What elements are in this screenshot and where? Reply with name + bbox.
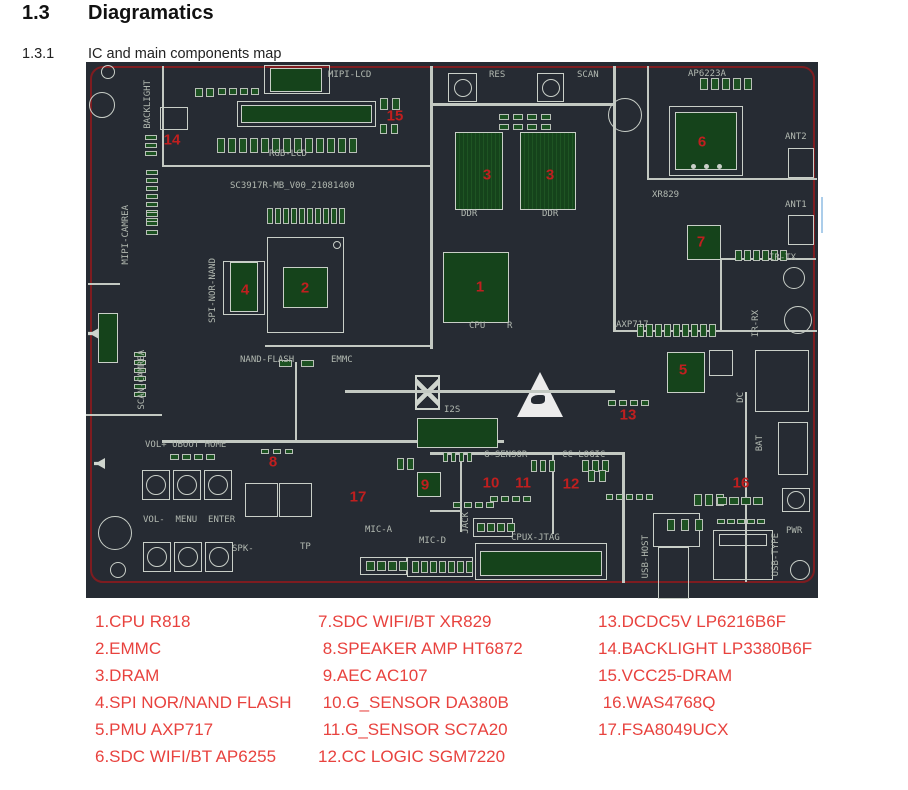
section-line: [622, 452, 625, 583]
tact-button: [204, 470, 232, 500]
silkscreen-label: RES: [489, 70, 505, 80]
solder-pad: [762, 250, 769, 261]
tact-button-cap: [177, 475, 197, 495]
section-line: [430, 103, 616, 106]
tact-button: [173, 470, 201, 500]
solder-pad: [448, 561, 455, 573]
solder-pad: [291, 208, 297, 224]
legend-column-3: 13.DCDC5V LP6216B6F14.BACKLIGHT LP3380B6…: [598, 608, 812, 743]
solder-pad: [451, 452, 456, 462]
esd-warning-hand: [531, 395, 545, 404]
solder-pad: [641, 400, 649, 406]
solder-pad: [527, 114, 537, 120]
circle-mark: [717, 164, 722, 169]
solder-pad: [512, 496, 520, 502]
solder-pad: [646, 494, 653, 500]
solder-pad: [275, 208, 281, 224]
solder-pad: [397, 458, 404, 470]
legend-item: 15.VCC25-DRAM: [598, 662, 812, 689]
tact-button: [142, 470, 170, 500]
solder-pad: [499, 114, 509, 120]
legend-column-2: 7.SDC WIFI/BT XR829 8.SPEAKER AMP HT6872…: [318, 608, 523, 770]
legend-item: 4.SPI NOR/NAND FLASH: [95, 689, 292, 716]
silkscreen-label: JACK: [461, 512, 471, 534]
silkscreen-label: DDR: [461, 209, 477, 219]
silkscreen-label: CC-LOGIC: [562, 450, 605, 460]
silkscreen-label: ANT1: [785, 200, 807, 210]
manual-page: { "page": { "section_number": "1.3", "se…: [0, 0, 908, 790]
solder-pad: [507, 523, 515, 532]
solder-pad: [391, 124, 398, 134]
solder-pad: [240, 88, 248, 95]
solder-pad: [722, 78, 730, 90]
silkscreen-label: R: [507, 321, 512, 331]
solder-pad: [399, 561, 408, 571]
silkscreen-label: NAND-FLASH: [240, 355, 294, 365]
solder-pad: [261, 138, 269, 153]
silkscreen-label: G-SENSOR: [484, 450, 527, 460]
solder-pad: [664, 324, 671, 337]
silkscreen-label: TP: [300, 542, 311, 552]
silkscreen-label: DC: [736, 392, 746, 403]
solder-pad: [146, 178, 158, 183]
silkscreen-label: MIC-D: [419, 536, 446, 546]
tact-button-cap: [542, 79, 560, 97]
legend-item: 17.FSA8049UCX: [598, 716, 812, 743]
tact-button: [782, 488, 810, 512]
solder-pad: [486, 502, 494, 508]
solder-pad: [459, 452, 464, 462]
solder-pad: [599, 470, 606, 482]
component-number: 15: [387, 108, 404, 125]
solder-pad: [315, 208, 321, 224]
solder-pad: [206, 454, 215, 460]
component-number: 12: [563, 476, 580, 493]
silkscreen-label: SPK-: [232, 544, 254, 554]
solder-pad: [694, 494, 702, 506]
solder-pad: [527, 124, 537, 130]
solder-pad: [729, 497, 739, 505]
solder-pad: [477, 523, 485, 532]
silkscreen-label: PWR: [786, 526, 802, 536]
solder-pad: [490, 496, 498, 502]
tact-button-cap: [787, 491, 805, 509]
silkscreen-label: VOL+ UBOOT HOME: [145, 440, 226, 450]
solder-pad: [430, 561, 437, 573]
solder-pad: [283, 208, 289, 224]
circle-mark: [608, 98, 642, 132]
silkscreen-label: AXP717: [616, 320, 649, 330]
silkscreen-label: MIC-A: [365, 525, 392, 535]
silkscreen-label: IR-TX: [769, 253, 796, 263]
solder-pad: [316, 138, 324, 153]
circle-mark: [101, 65, 115, 79]
component-number: 16: [733, 475, 750, 492]
legend-item: 9.AEC AC107: [318, 662, 523, 689]
solder-pad: [453, 502, 461, 508]
component-number: 6: [698, 134, 706, 151]
silkscreen-label: SCAN-CAMREA: [137, 350, 147, 410]
solder-pad: [229, 88, 237, 95]
solder-pad: [412, 561, 419, 573]
component-number: 2: [301, 280, 309, 297]
solder-pad: [146, 194, 158, 199]
solder-pad: [549, 460, 555, 472]
solder-pad: [695, 519, 703, 531]
tact-button-cap: [209, 547, 229, 567]
silkscreen-label: ANT2: [785, 132, 807, 142]
component-outline: [264, 65, 330, 94]
silkscreen-label: SC3917R-MB_V00_21081400: [230, 181, 355, 191]
solder-pad: [146, 202, 158, 207]
solder-pad: [608, 400, 616, 406]
solder-pad: [753, 250, 760, 261]
tact-button-cap: [208, 475, 228, 495]
tact-button-cap: [454, 79, 472, 97]
solder-pad: [717, 497, 727, 505]
solder-pad: [218, 88, 226, 95]
component-number: 11: [515, 475, 531, 492]
silkscreen-label: USB-HOST: [641, 535, 651, 578]
tact-button: [448, 73, 477, 102]
solder-pad: [457, 561, 464, 573]
solder-pad: [733, 78, 741, 90]
solder-pad: [217, 138, 225, 153]
component-number: 14: [164, 132, 181, 149]
legend-item: 10.G_SENSOR DA380B: [318, 689, 523, 716]
component-outline: [788, 148, 814, 178]
pcb-diagram: MIPI-LCDRGB-LCDSC3917R-MB_V00_21081400NA…: [86, 62, 818, 598]
solder-pad: [735, 250, 742, 261]
solder-pad: [377, 561, 386, 571]
solder-pad: [380, 124, 387, 134]
component-number: 1: [476, 279, 484, 296]
component-outline: [719, 534, 767, 546]
component-outline: [475, 543, 607, 580]
section-line: [647, 178, 817, 180]
solder-pad: [194, 454, 203, 460]
solder-pad: [667, 519, 675, 531]
component-outline: [709, 350, 733, 376]
component-outline: [778, 422, 808, 475]
solder-pad: [523, 496, 531, 502]
component-outline: [755, 350, 809, 412]
solder-pad: [747, 519, 755, 524]
solder-pad: [513, 124, 523, 130]
component-number: 9: [421, 477, 429, 494]
solder-pad: [145, 143, 157, 148]
solder-pad: [407, 458, 414, 470]
solder-pad: [630, 400, 638, 406]
legend-item: 6.SDC WIFI/BT AP6255: [95, 743, 292, 770]
solder-pad: [464, 502, 472, 508]
component-number: 10: [483, 475, 500, 492]
solder-pad: [251, 88, 259, 95]
solder-pad: [366, 561, 375, 571]
subsection-number: 1.3.1: [22, 46, 54, 62]
silkscreen-label: XR829: [652, 190, 679, 200]
component-number: 7: [697, 234, 705, 251]
section-line: [295, 362, 297, 442]
component-outline: [245, 483, 278, 517]
solder-pad: [691, 324, 698, 337]
solder-pad: [307, 208, 313, 224]
solder-pad: [744, 78, 752, 90]
render-artifact: [821, 197, 823, 233]
solder-pad: [146, 212, 158, 217]
solder-pad: [682, 324, 689, 337]
solder-pad: [195, 88, 203, 97]
component-outline: [788, 215, 814, 245]
solder-pad: [501, 496, 509, 502]
solder-pad: [331, 208, 337, 224]
silkscreen-label: DDR: [542, 209, 558, 219]
silkscreen-label: MIPI-LCD: [328, 70, 371, 80]
silkscreen-label: I2S: [444, 405, 460, 415]
legend-item: 5.PMU AXP717: [95, 716, 292, 743]
solder-pad: [443, 452, 448, 462]
circle-mark: [783, 267, 805, 289]
silkscreen-label: USB-TYPE: [771, 533, 781, 576]
legend-item: 11.G_SENSOR SC7A20: [318, 716, 523, 743]
silkscreen-label: IR-RX: [751, 310, 761, 337]
component-outline: [279, 483, 312, 517]
solder-pad: [261, 449, 269, 454]
solder-pad: [146, 230, 158, 235]
solder-pad: [145, 135, 157, 140]
solder-pad: [540, 460, 546, 472]
tact-button: [205, 542, 233, 572]
circle-mark: [704, 164, 709, 169]
solder-pad: [228, 138, 236, 153]
solder-pad: [717, 519, 725, 524]
silkscreen-label: CPUX-JTAG: [511, 533, 560, 543]
legend-item: 3.DRAM: [95, 662, 292, 689]
tact-button-cap: [178, 547, 198, 567]
solder-pad: [636, 494, 643, 500]
component-number: 3: [483, 167, 491, 184]
section-line: [162, 165, 432, 167]
solder-pad: [475, 502, 483, 508]
solder-pad: [531, 460, 537, 472]
legend-item: 14.BACKLIGHT LP3380B6F: [598, 635, 812, 662]
solder-pad: [499, 124, 509, 130]
solder-pad: [250, 138, 258, 153]
circle-mark: [790, 560, 810, 580]
circle-mark: [333, 241, 341, 249]
legend-item: 2.EMMC: [95, 635, 292, 662]
circle-mark: [98, 516, 132, 550]
silkscreen-label: EMMC: [331, 355, 353, 365]
solder-pad: [388, 561, 397, 571]
circle-mark: [110, 562, 126, 578]
component-outline: [653, 513, 700, 547]
solder-pad: [146, 186, 158, 191]
solder-pad: [285, 449, 293, 454]
solder-pad: [299, 208, 305, 224]
component-number: 3: [546, 167, 554, 184]
component-number: 17: [350, 489, 367, 506]
solder-pad: [741, 497, 751, 505]
solder-pad: [327, 138, 335, 153]
silkscreen-label: BAT: [755, 435, 765, 451]
legend-item: 13.DCDC5V LP6216B6F: [598, 608, 812, 635]
section-line: [345, 390, 615, 393]
silkscreen-label: SCAN: [577, 70, 599, 80]
legend-item: 16.WAS4768Q: [598, 689, 812, 716]
tact-button-cap: [146, 475, 166, 495]
solder-pad: [467, 452, 472, 462]
solder-pad: [170, 454, 179, 460]
solder-pad: [619, 400, 627, 406]
solder-pad: [711, 78, 719, 90]
solder-pad: [323, 208, 329, 224]
component-number: 8: [269, 454, 277, 471]
chip: [98, 313, 118, 363]
chip: [455, 132, 503, 210]
solder-pad: [673, 324, 680, 337]
solder-pad: [700, 78, 708, 90]
tact-button: [537, 73, 564, 102]
solder-pad: [616, 494, 623, 500]
component-number: 4: [241, 282, 249, 299]
solder-pad: [681, 519, 689, 531]
silkscreen-label: BACKLIGHT: [143, 80, 153, 129]
component-outline: [237, 101, 376, 127]
section-line: [430, 510, 462, 512]
section-line: [647, 66, 649, 178]
component-outline: [658, 547, 689, 599]
solder-pad: [753, 497, 763, 505]
section-line: [265, 345, 433, 347]
silkscreen-label: SPI-NOR-NAND: [208, 258, 218, 323]
solder-pad: [466, 561, 473, 573]
silkscreen-label: CPU: [469, 321, 485, 331]
solder-pad: [339, 208, 345, 224]
tact-button: [143, 542, 171, 572]
circle-mark: [784, 306, 812, 334]
section-title: Diagramatics: [88, 2, 214, 25]
solder-pad: [145, 151, 157, 156]
solder-pad: [700, 324, 707, 337]
component-outline: [160, 107, 188, 130]
subsection-title: IC and main components map: [88, 46, 281, 62]
solder-pad: [606, 494, 613, 500]
solder-pad: [727, 519, 735, 524]
solder-pad: [301, 360, 314, 367]
chip: [417, 418, 498, 448]
solder-pad: [182, 454, 191, 460]
silkscreen-label: AP6223A: [688, 69, 726, 79]
solder-pad: [439, 561, 446, 573]
legend-item: 12.CC LOGIC SGM7220: [318, 743, 523, 770]
solder-pad: [541, 124, 551, 130]
solder-pad: [239, 138, 247, 153]
component-number: 5: [679, 362, 687, 379]
tact-button: [174, 542, 202, 572]
solder-pad: [588, 470, 595, 482]
solder-pad: [497, 523, 505, 532]
component-number: 13: [620, 407, 637, 424]
legend-item: 8.SPEAKER AMP HT6872: [318, 635, 523, 662]
solder-pad: [146, 221, 158, 226]
section-line: [430, 66, 433, 349]
legend-item: 1.CPU R818: [95, 608, 292, 635]
solder-pad: [626, 494, 633, 500]
legend-item: 7.SDC WIFI/BT XR829: [318, 608, 523, 635]
solder-pad: [744, 250, 751, 261]
section-line: [720, 258, 722, 332]
section-line: [88, 283, 120, 285]
tact-button-cap: [147, 547, 167, 567]
solder-pad: [737, 519, 745, 524]
solder-pad: [267, 208, 273, 224]
solder-pad: [206, 88, 214, 97]
solder-pad: [655, 324, 662, 337]
solder-pad: [709, 324, 716, 337]
solder-pad: [513, 114, 523, 120]
legend-column-1: 1.CPU R8182.EMMC3.DRAM4.SPI NOR/NAND FLA…: [95, 608, 292, 770]
solder-pad: [541, 114, 551, 120]
circle-mark: [691, 164, 696, 169]
circle-mark: [89, 92, 115, 118]
silkscreen-label: VOL- MENU ENTER: [143, 515, 235, 525]
solder-pad: [421, 561, 428, 573]
solder-pad: [705, 494, 713, 506]
silkscreen-label: MIPI-CAMREA: [121, 205, 131, 265]
solder-pad: [338, 138, 346, 153]
section-line: [86, 414, 162, 416]
section-number: 1.3: [22, 2, 50, 25]
silkscreen-label: RGB-LCD: [269, 149, 307, 159]
solder-pad: [349, 138, 357, 153]
solder-pad: [146, 170, 158, 175]
solder-pad: [757, 519, 765, 524]
solder-pad: [487, 523, 495, 532]
